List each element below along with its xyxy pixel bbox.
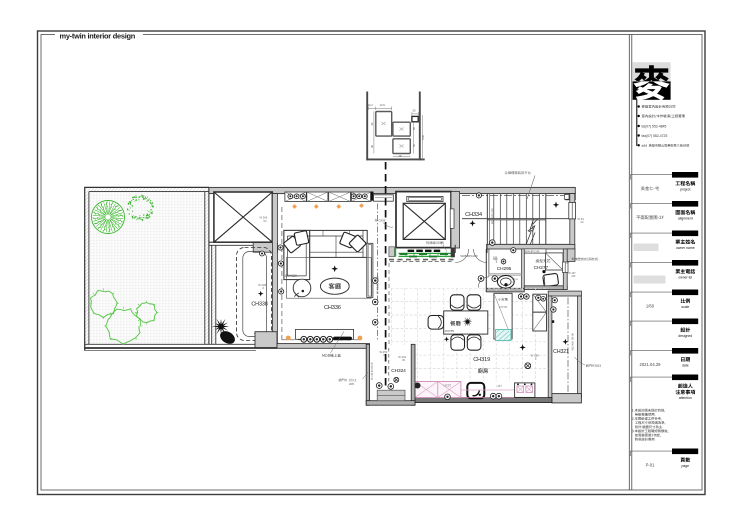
svg-text:14.5: 14.5 [380, 103, 386, 107]
svg-text:designed: designed [678, 334, 692, 338]
svg-text:CH319: CH319 [473, 357, 490, 363]
svg-text:CH295: CH295 [497, 266, 512, 272]
svg-text:H87: H87 [497, 384, 503, 388]
svg-text:project: project [680, 188, 690, 192]
svg-text:64: 64 [264, 219, 267, 223]
svg-text:205: 205 [349, 382, 354, 386]
svg-text:5.58: 5.58 [422, 135, 425, 140]
svg-text:115: 115 [571, 274, 576, 278]
svg-text:CH321: CH321 [553, 349, 569, 355]
svg-text:45: 45 [402, 358, 405, 362]
svg-text:owner tel: owner tel [678, 276, 692, 280]
svg-text:CH324: CH324 [391, 368, 406, 374]
svg-text:my-twin interior design: my-twin interior design [60, 32, 136, 41]
svg-text:34.2: 34.2 [368, 103, 374, 107]
svg-text:170*81: 170*81 [499, 305, 508, 309]
svg-text:CH334: CH334 [465, 212, 482, 218]
svg-text:160*85: 160*85 [444, 329, 454, 333]
svg-text:CH277: CH277 [534, 265, 549, 271]
svg-text:owner name: owner name [676, 246, 695, 250]
svg-text:CH338: CH338 [251, 302, 267, 308]
svg-text:attention: attention [679, 396, 692, 400]
svg-text:1/60: 1/60 [646, 304, 655, 309]
svg-text:26: 26 [413, 109, 416, 113]
svg-text:100*180: 100*180 [285, 274, 297, 278]
svg-text:scale: scale [681, 305, 689, 309]
svg-text:W08-BPC200: W08-BPC200 [461, 254, 479, 258]
svg-text:2021.04.29: 2021.04.29 [640, 362, 662, 367]
svg-text:CH336: CH336 [324, 305, 341, 311]
svg-text:P-01: P-01 [646, 463, 656, 468]
svg-text:H222: H222 [444, 384, 452, 388]
svg-text:date: date [682, 364, 689, 368]
svg-text:fax(07) 552-4725: fax(07) 552-4725 [642, 134, 668, 138]
svg-text:alignment: alignment [678, 217, 693, 221]
svg-text:24: 24 [581, 220, 584, 224]
svg-text:tel(07) 552-4845: tel(07) 552-4845 [642, 124, 667, 128]
svg-text:page: page [682, 464, 690, 468]
